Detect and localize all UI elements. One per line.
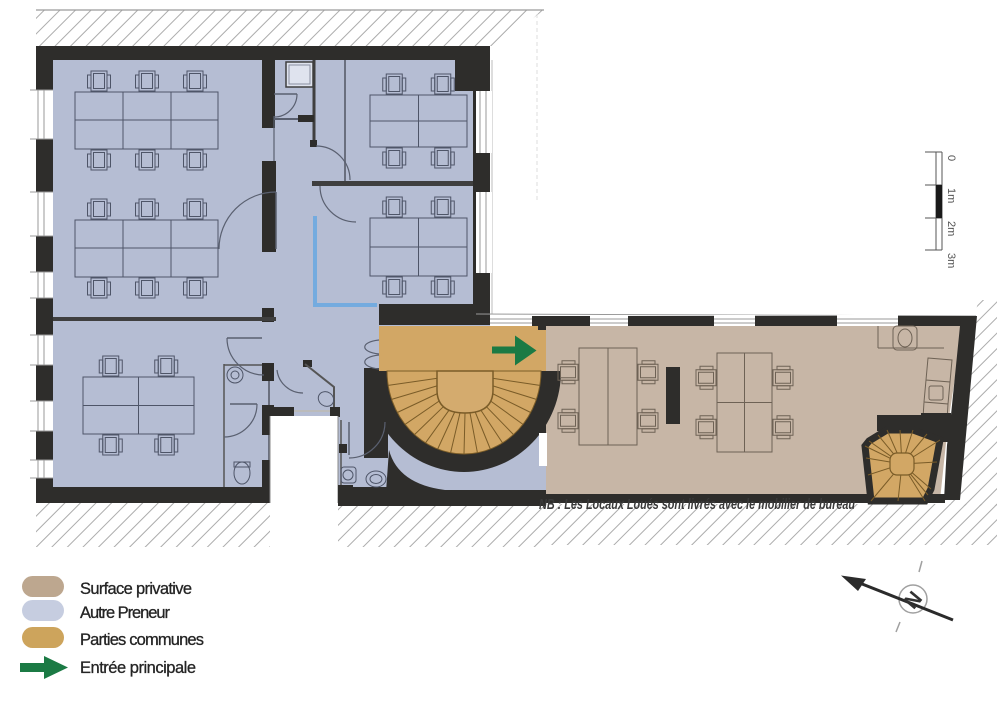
svg-text:Parties communes: Parties communes [80,631,204,649]
svg-text:1m: 1m [945,188,957,203]
svg-text:3m: 3m [945,253,957,268]
svg-text:0: 0 [945,155,957,161]
svg-text:Entrée principale: Entrée principale [80,659,196,677]
svg-text:NB : Les Locaux Loués sont liv: NB : Les Locaux Loués sont livrés avec l… [539,497,855,513]
svg-text:2m: 2m [945,221,957,236]
svg-text:Autre Preneur: Autre Preneur [80,604,171,622]
svg-text:Surface privative: Surface privative [80,580,192,598]
